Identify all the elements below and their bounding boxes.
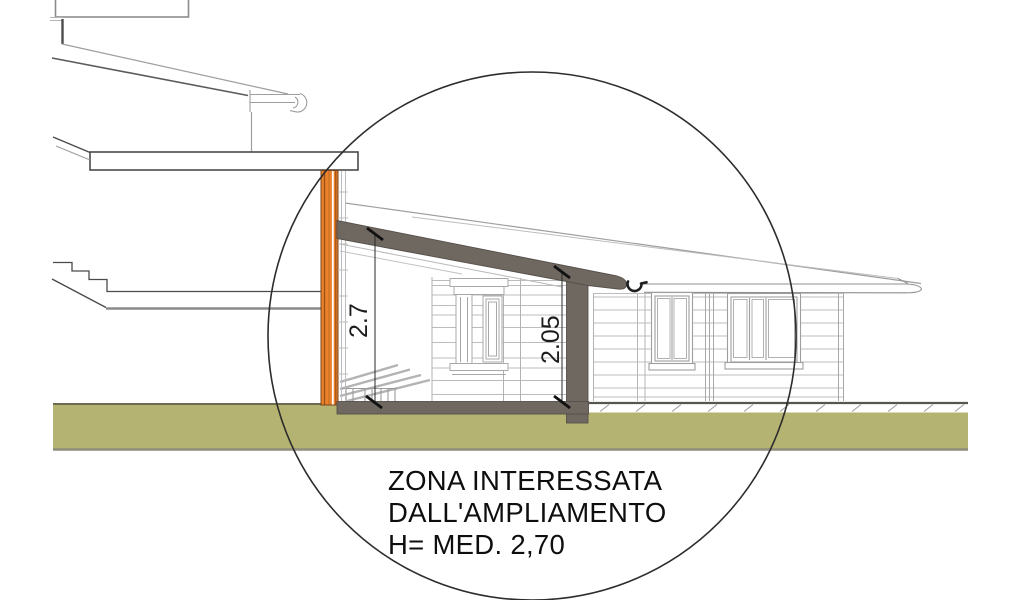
- callout-line-1: ZONA INTERESSATA: [388, 465, 663, 496]
- architectural-section-drawing: 2.7 2.05 ZONA INTERESSATA DALL'AMPLIAMEN…: [0, 0, 1024, 600]
- background-elevation: [345, 203, 922, 401]
- interior-door-surround: [450, 279, 508, 375]
- extension-column: [567, 271, 589, 423]
- window-right: [725, 294, 803, 370]
- callout-line-3: H= MED. 2,70: [388, 529, 565, 560]
- dimension-label-left: 2.7: [345, 303, 373, 338]
- upper-roof-slab: [56, 0, 189, 17]
- dimension-label-right: 2.05: [537, 315, 565, 364]
- window-left: [649, 293, 695, 371]
- callout-text: ZONA INTERESSATA DALL'AMPLIAMENTO H= MED…: [388, 465, 667, 560]
- wall-finish-lines: [338, 171, 348, 401]
- orange-insulated-wall: [321, 171, 348, 406]
- stairs-section: [52, 263, 322, 308]
- callout-line-2: DALL'AMPLIAMENTO: [388, 497, 667, 528]
- dimension-left: 2.7: [345, 228, 383, 408]
- siding-lines: [593, 294, 843, 398]
- upper-gutter: [250, 90, 307, 112]
- upper-roof-surface-line: [62, 44, 288, 94]
- existing-building-left: [50, 0, 358, 309]
- roof-fascia: [641, 279, 922, 293]
- gutter-hook-icon: [628, 282, 647, 292]
- pavement-strip: [588, 403, 968, 413]
- eave-band: [53, 137, 358, 170]
- dimension-right: 2.05: [537, 266, 570, 408]
